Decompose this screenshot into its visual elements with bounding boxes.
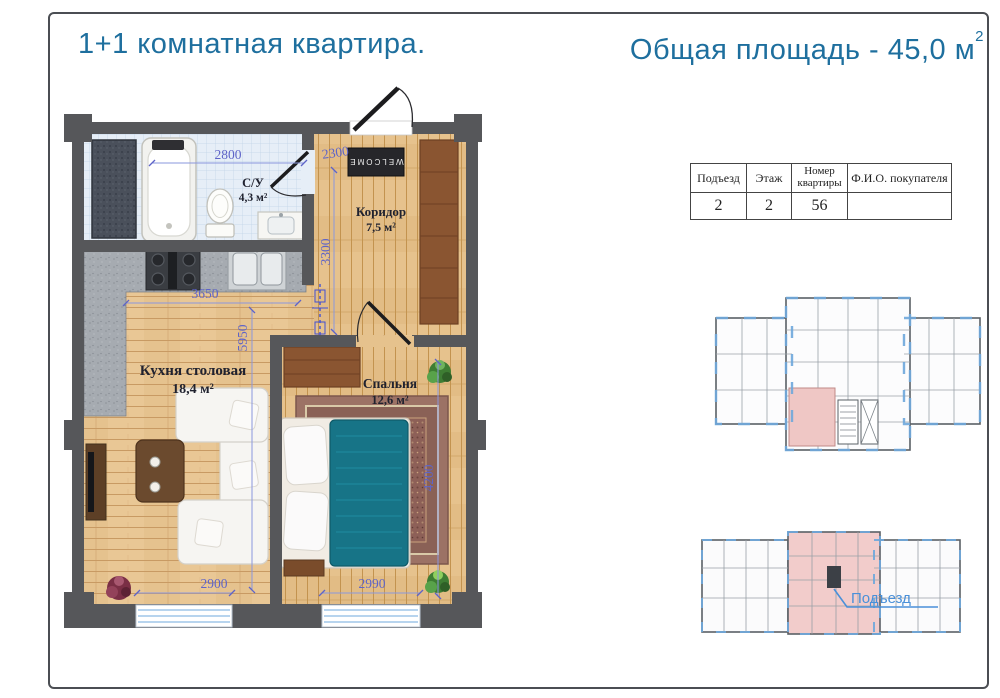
entrance-mark bbox=[827, 566, 841, 588]
kitchen-sink bbox=[228, 246, 286, 290]
stair-core bbox=[838, 400, 878, 444]
welcome-doormat: WELCOME bbox=[348, 148, 404, 176]
bedroom-area: 12,6 м² bbox=[371, 393, 409, 407]
entrance-door bbox=[350, 88, 412, 135]
floor-key-plan bbox=[716, 298, 980, 450]
stove bbox=[146, 248, 200, 290]
bed bbox=[280, 418, 410, 576]
window-kitchen bbox=[136, 605, 232, 627]
dim-2800: 2800 bbox=[215, 147, 242, 162]
entrance-label: Подъезд bbox=[851, 590, 911, 607]
kitchen-label: Кухня столовая bbox=[140, 363, 246, 379]
doormat-text: WELCOME bbox=[348, 157, 403, 166]
dim-2990: 2990 bbox=[359, 576, 386, 591]
toilet bbox=[206, 189, 234, 237]
bathroom-sink bbox=[258, 212, 304, 239]
hall-label: Коридор bbox=[356, 204, 406, 219]
dim-3650: 3650 bbox=[192, 286, 219, 301]
window-bedroom bbox=[322, 605, 420, 627]
floorplan-drawing: WELCOME 2800 2300 3300 3650 5950 2900 29… bbox=[0, 0, 1000, 698]
hall-wardrobe bbox=[420, 140, 458, 324]
bathtub bbox=[142, 138, 196, 242]
utility-shaft bbox=[92, 140, 136, 238]
bathroom-label: С/У bbox=[242, 176, 264, 190]
dim-3300: 3300 bbox=[318, 238, 333, 265]
tv-stand bbox=[86, 444, 106, 520]
dim-5950: 5950 bbox=[235, 324, 250, 351]
bathroom-area: 4,3 м² bbox=[239, 192, 268, 204]
bedroom-wardrobe bbox=[284, 347, 360, 387]
bedroom-label: Спальня bbox=[363, 376, 417, 391]
apartment-plan: WELCOME 2800 2300 3300 3650 5950 2900 29… bbox=[64, 88, 486, 628]
coffee-table bbox=[136, 440, 184, 502]
kitchen-area: 18,4 м² bbox=[172, 382, 214, 397]
highlighted-apartment bbox=[789, 388, 835, 446]
dim-4200: 4200 bbox=[421, 464, 436, 491]
dim-2900: 2900 bbox=[201, 576, 228, 591]
building-key-plan: Подъезд bbox=[702, 532, 960, 634]
page: 1+1 комнатная квартира. Общая площадь - … bbox=[0, 0, 1000, 698]
hall-area: 7,5 м² bbox=[366, 220, 396, 234]
